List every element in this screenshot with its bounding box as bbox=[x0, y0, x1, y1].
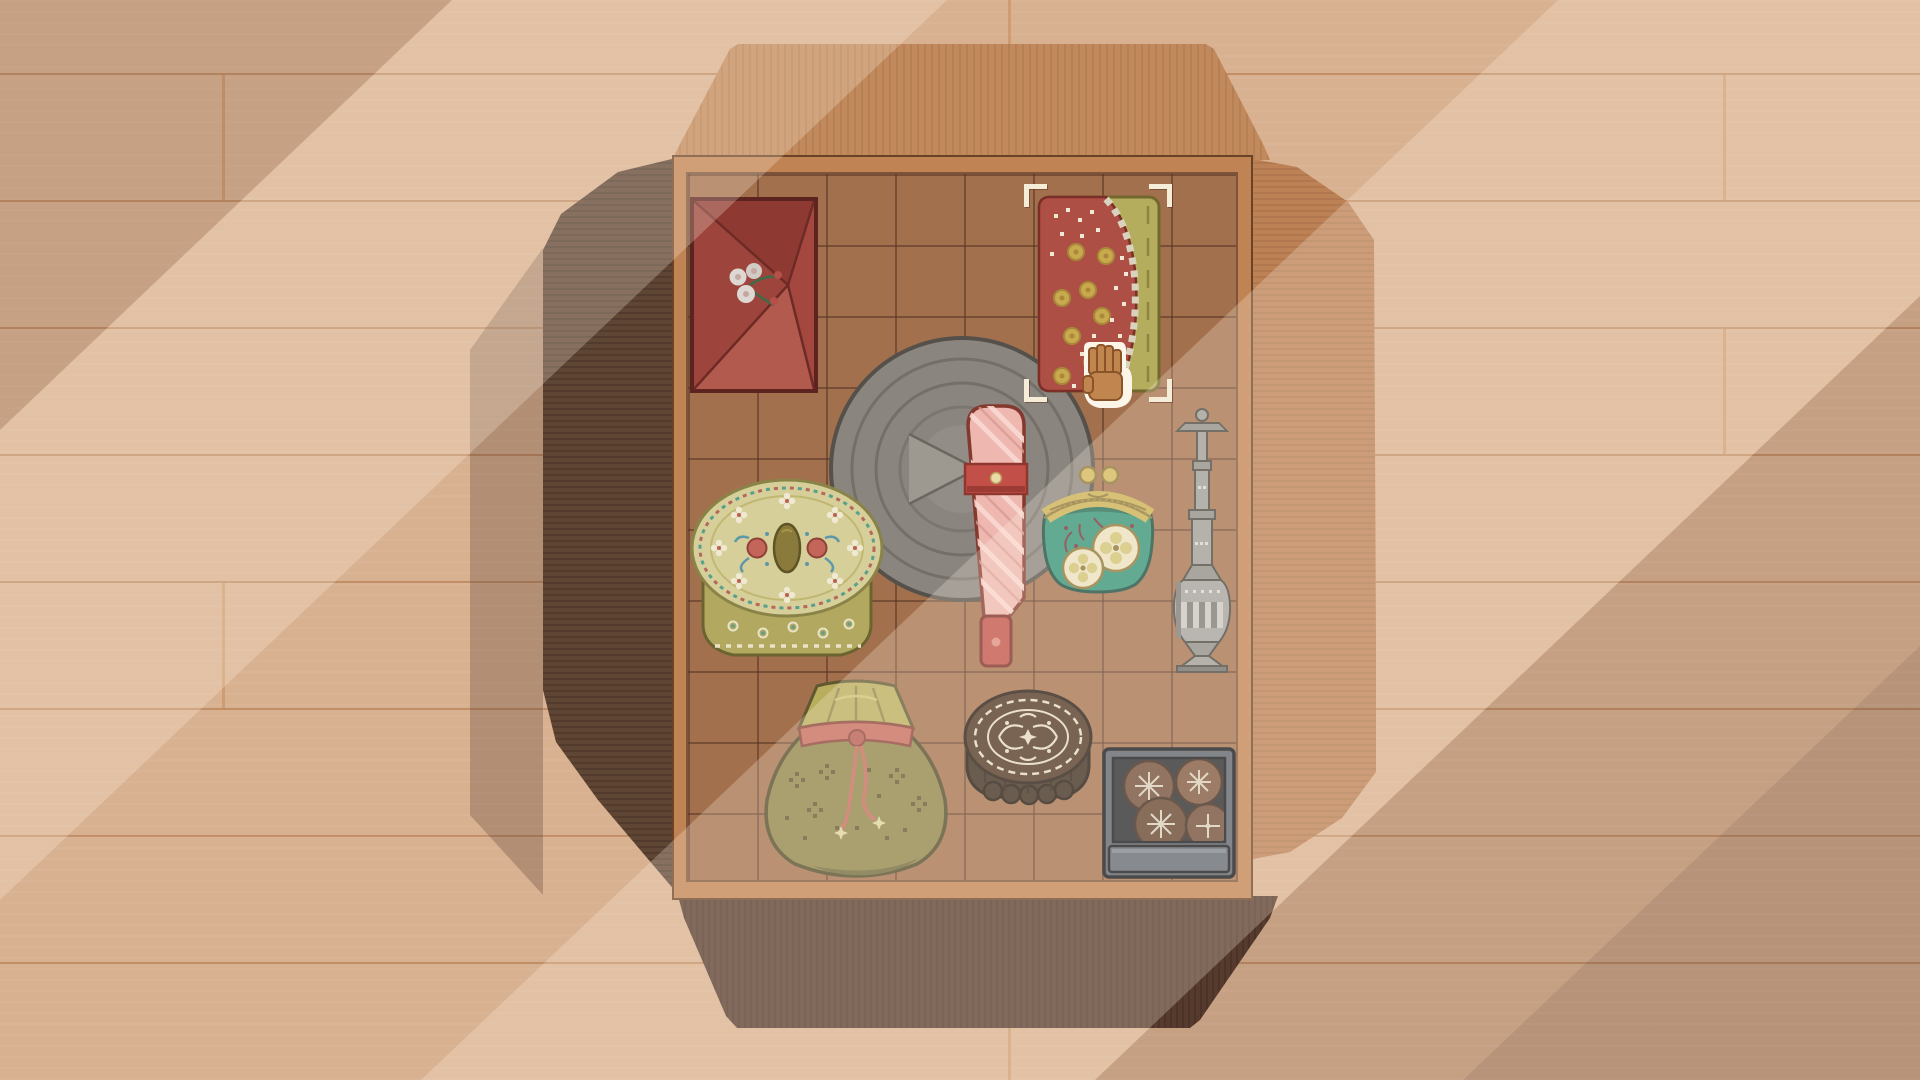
bracket-bottomleft-icon bbox=[1024, 379, 1047, 402]
item-drawstring-pouch[interactable] bbox=[755, 676, 957, 880]
plank-joint bbox=[1723, 75, 1726, 200]
plank-joint bbox=[222, 75, 225, 200]
plank-joint bbox=[222, 583, 225, 708]
item-silver-vase[interactable] bbox=[1169, 404, 1235, 676]
item-cookie-box[interactable] bbox=[1101, 746, 1237, 880]
item-red-envelope[interactable] bbox=[690, 197, 818, 393]
plank-joint bbox=[1723, 329, 1726, 454]
hand-cursor-icon bbox=[1078, 334, 1134, 410]
item-floral-tin[interactable] bbox=[689, 476, 885, 668]
bracket-topleft-icon bbox=[1024, 184, 1047, 207]
game-scene bbox=[0, 0, 1920, 1080]
item-coin-purse[interactable] bbox=[1036, 460, 1160, 598]
bracket-bottomright-icon bbox=[1149, 379, 1172, 402]
item-mooncake[interactable] bbox=[961, 679, 1095, 815]
item-pink-parcel[interactable] bbox=[960, 402, 1032, 670]
bracket-topright-icon bbox=[1149, 184, 1172, 207]
